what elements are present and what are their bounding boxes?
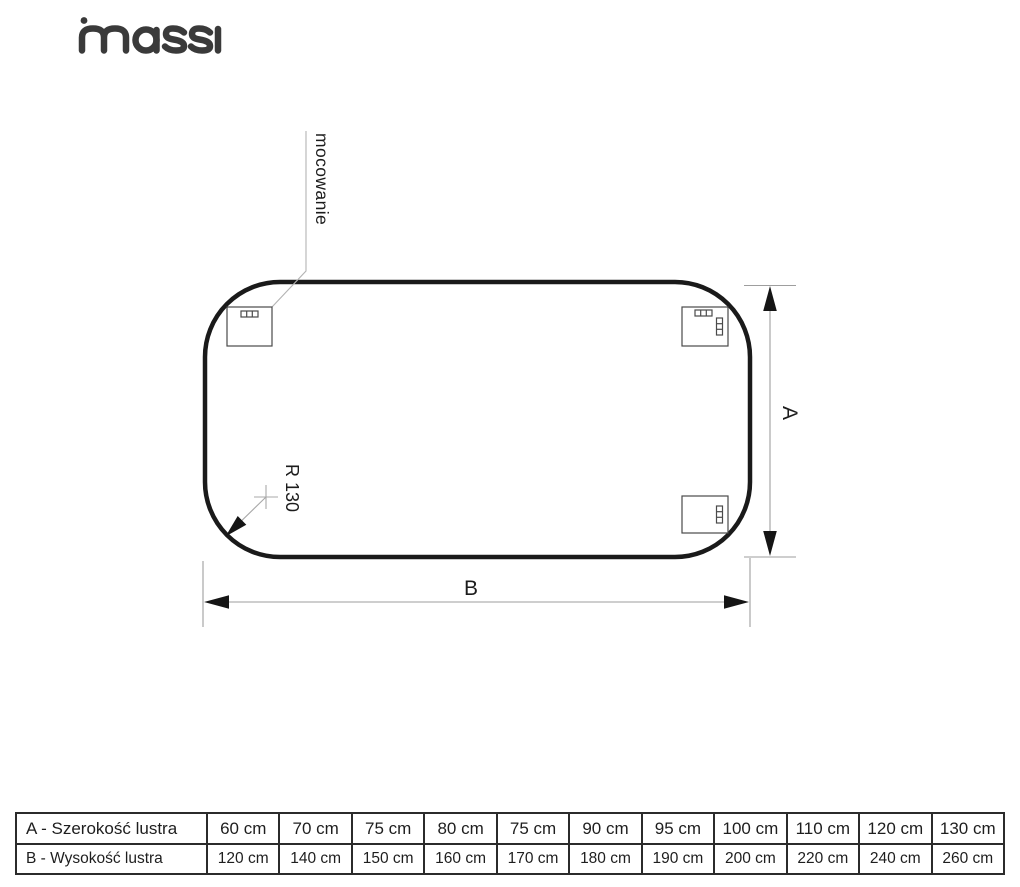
bracket-slot-horizontal: [695, 310, 712, 316]
size-table-cell: 70 cm: [279, 813, 351, 844]
mirror-outline: [205, 282, 750, 557]
size-table-cell: 75 cm: [497, 813, 569, 844]
page: mocowanie R 130 A B A - Szerokość lustra…: [0, 0, 1020, 887]
size-table-cell: 160 cm: [424, 844, 496, 874]
arrowhead-down: [763, 531, 777, 556]
size-table-cell: 90 cm: [569, 813, 641, 844]
arrowhead-left: [204, 595, 229, 609]
mounting-bracket-top-left: [227, 307, 272, 346]
size-table: A - Szerokość lustra60 cm70 cm75 cm80 cm…: [15, 812, 1005, 875]
size-table-cell: 120 cm: [207, 844, 279, 874]
size-table-cell: 170 cm: [497, 844, 569, 874]
size-table-cell: 120 cm: [859, 813, 931, 844]
size-table-cell: 190 cm: [642, 844, 714, 874]
radius-label: R 130: [281, 464, 302, 512]
size-table-body: A - Szerokość lustra60 cm70 cm75 cm80 cm…: [16, 813, 1004, 874]
size-table-cell: 60 cm: [207, 813, 279, 844]
size-table-cell: 140 cm: [279, 844, 351, 874]
size-table-cell: 80 cm: [424, 813, 496, 844]
size-table-cell: 150 cm: [352, 844, 424, 874]
mounting-label: mocowanie: [311, 133, 332, 225]
size-table-cell: 260 cm: [932, 844, 1004, 874]
size-table-cell: 200 cm: [714, 844, 786, 874]
size-table-row: B - Wysokość lustra120 cm140 cm150 cm160…: [16, 844, 1004, 874]
mirror-technical-drawing: [0, 0, 1020, 887]
mounting-bracket-top-right: [682, 307, 728, 346]
bracket-slot-vertical: [717, 318, 723, 335]
size-table-cell: 100 cm: [714, 813, 786, 844]
size-table-cell: 95 cm: [642, 813, 714, 844]
dimension-a-label: A: [777, 406, 801, 420]
size-table-cell: 75 cm: [352, 813, 424, 844]
size-table-cell: 110 cm: [787, 813, 859, 844]
size-table-cell: 220 cm: [787, 844, 859, 874]
bracket-slot-horizontal: [241, 311, 258, 317]
arrowhead-right: [724, 595, 749, 609]
radius-annotation: [226, 485, 279, 537]
size-table-row-label: A - Szerokość lustra: [16, 813, 207, 844]
dimension-b-label: B: [464, 577, 478, 601]
mounting-bracket-bottom-right: [682, 496, 728, 533]
bracket-slot-vertical: [717, 506, 723, 523]
arrowhead-up: [763, 286, 777, 311]
size-table-row: A - Szerokość lustra60 cm70 cm75 cm80 cm…: [16, 813, 1004, 844]
size-table-cell: 180 cm: [569, 844, 641, 874]
size-table-cell: 240 cm: [859, 844, 931, 874]
size-table-cell: 130 cm: [932, 813, 1004, 844]
size-table-row-label: B - Wysokość lustra: [16, 844, 207, 874]
